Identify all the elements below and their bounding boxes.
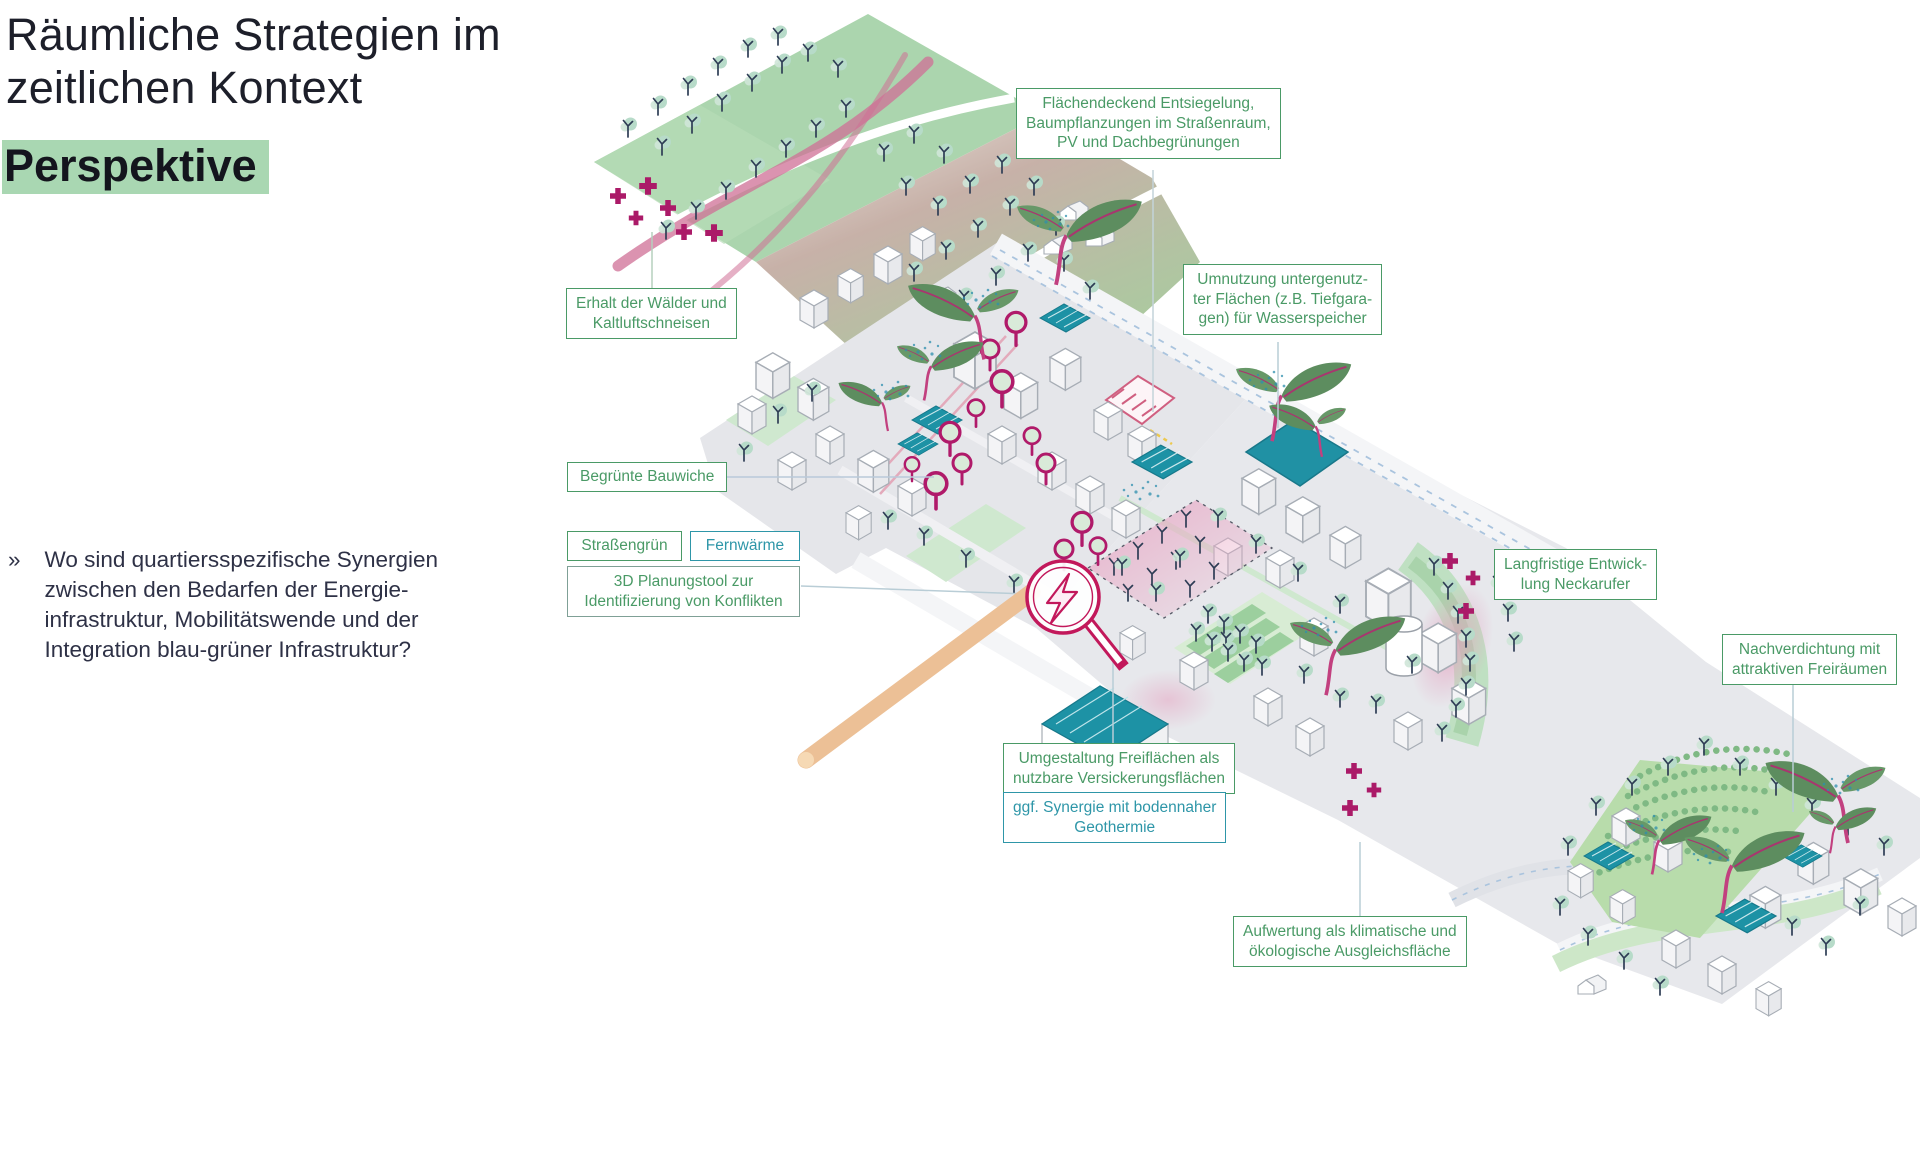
slide-title: Räumliche Strategien imzeitlichen Kontex…: [6, 8, 501, 114]
callout-3d-planungstool: 3D Planungstool zur Identifizierung von …: [567, 566, 800, 617]
callout-geothermie: ggf. Synergie mit bodennaher Geothermie: [1003, 792, 1226, 843]
slide: Räumliche Strategien imzeitlichen Kontex…: [0, 0, 1920, 1161]
callout-fernwaerme: Fernwärme: [690, 531, 800, 561]
callout-langfristige-neckarufer: Langfristige Entwick- lung Neckarufer: [1494, 549, 1657, 600]
callout-erhalt-waelder: Erhalt der Wälder und Kaltluftschneisen: [566, 288, 737, 339]
callout-strassengruen: Straßengrün: [567, 531, 682, 561]
callout-nachverdichtung: Nachverdichtung mit attraktiven Freiräum…: [1722, 634, 1897, 685]
bullet-marker: »: [8, 545, 21, 665]
bullet-text: Wo sind quartiersspezifische Synergien z…: [45, 545, 439, 665]
callout-umnutzung-wasserspeicher: Umnutzung untergenutz- ter Flächen (z.B.…: [1183, 264, 1382, 335]
callout-umgestaltung-versickerung: Umgestaltung Freiflächen als nutzbare Ve…: [1003, 743, 1235, 794]
title-highlight-perspektive: Perspektive: [2, 140, 269, 194]
callout-begruente-bauwiche: Begrünte Bauwiche: [567, 462, 727, 492]
callout-flaechendeckende-entsiegelung: Flächendeckend Entsiegelung, Baumpflanzu…: [1016, 88, 1281, 159]
callout-aufwertung-ausgleichsflaeche: Aufwertung als klimatische und ökologisc…: [1233, 916, 1467, 967]
bullet-question: » Wo sind quartiersspezifische Synergien…: [8, 545, 508, 665]
